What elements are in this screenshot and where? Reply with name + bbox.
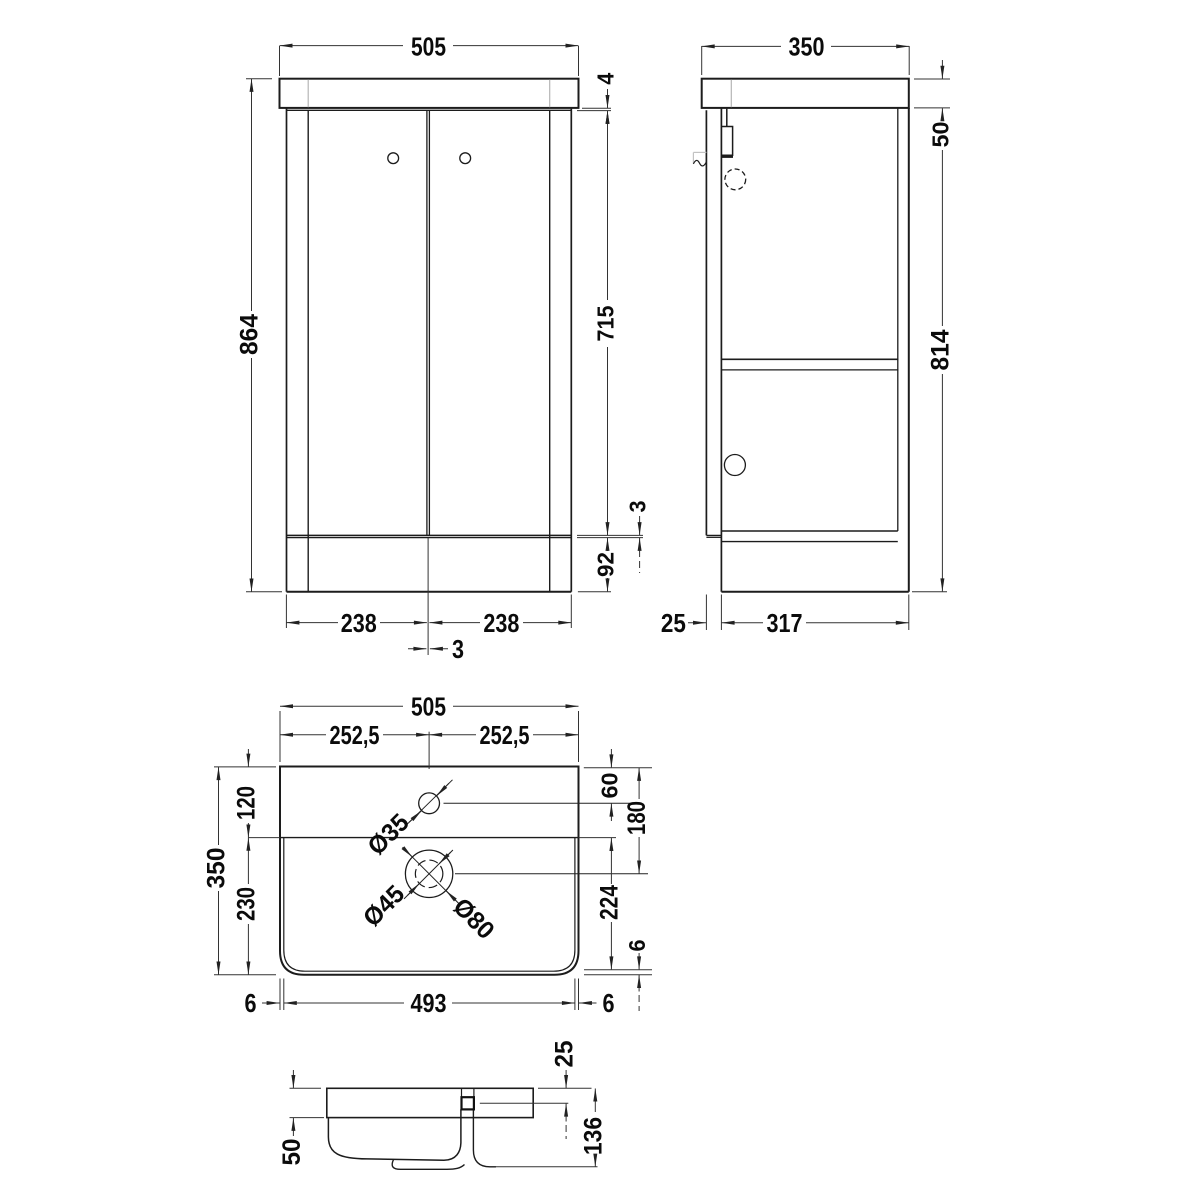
svg-text:864: 864 bbox=[236, 314, 264, 355]
svg-text:6: 6 bbox=[245, 988, 257, 1018]
svg-text:50: 50 bbox=[278, 1139, 306, 1166]
svg-text:Ø35: Ø35 bbox=[362, 808, 414, 860]
svg-text:224: 224 bbox=[595, 885, 623, 920]
svg-text:4: 4 bbox=[593, 73, 619, 85]
svg-text:350: 350 bbox=[789, 32, 825, 62]
svg-text:814: 814 bbox=[926, 329, 954, 370]
svg-text:252,5: 252,5 bbox=[330, 720, 380, 750]
svg-text:505: 505 bbox=[411, 692, 446, 722]
svg-text:6: 6 bbox=[624, 940, 650, 952]
svg-text:Ø45: Ø45 bbox=[358, 880, 410, 932]
svg-text:505: 505 bbox=[411, 32, 446, 62]
svg-text:180: 180 bbox=[623, 801, 651, 835]
svg-text:715: 715 bbox=[593, 305, 619, 341]
svg-text:136: 136 bbox=[580, 1117, 608, 1155]
svg-text:6: 6 bbox=[603, 988, 615, 1018]
svg-text:350: 350 bbox=[203, 848, 231, 889]
svg-text:120: 120 bbox=[232, 786, 260, 820]
svg-text:3: 3 bbox=[452, 634, 464, 664]
svg-text:60: 60 bbox=[596, 773, 622, 799]
svg-text:493: 493 bbox=[411, 988, 447, 1018]
svg-text:50: 50 bbox=[928, 122, 954, 148]
svg-text:25: 25 bbox=[550, 1040, 578, 1067]
svg-text:238: 238 bbox=[483, 608, 519, 638]
svg-text:252,5: 252,5 bbox=[480, 720, 530, 750]
svg-text:317: 317 bbox=[767, 608, 803, 638]
svg-text:238: 238 bbox=[341, 608, 377, 638]
svg-text:230: 230 bbox=[232, 887, 260, 921]
svg-text:25: 25 bbox=[661, 608, 686, 638]
svg-text:92: 92 bbox=[593, 552, 619, 577]
svg-text:3: 3 bbox=[625, 501, 651, 513]
